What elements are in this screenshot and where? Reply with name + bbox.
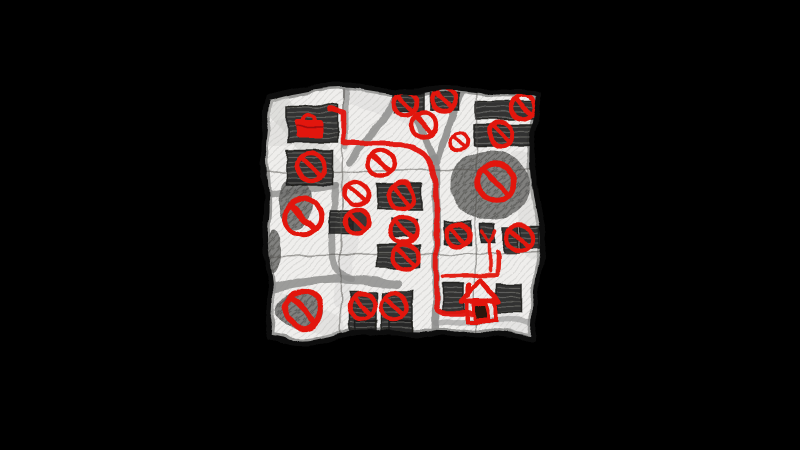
sketch-building (497, 284, 521, 313)
sketch-building (443, 283, 464, 312)
foliage-blob (450, 150, 530, 220)
house-door (474, 305, 487, 319)
briefcase-body (295, 120, 323, 138)
crumpled-paper-map (250, 75, 560, 360)
screenshot-root (0, 0, 800, 450)
sketch-map-canvas (0, 0, 800, 450)
no-entry-sign (345, 210, 369, 234)
sketch-building (390, 321, 412, 332)
